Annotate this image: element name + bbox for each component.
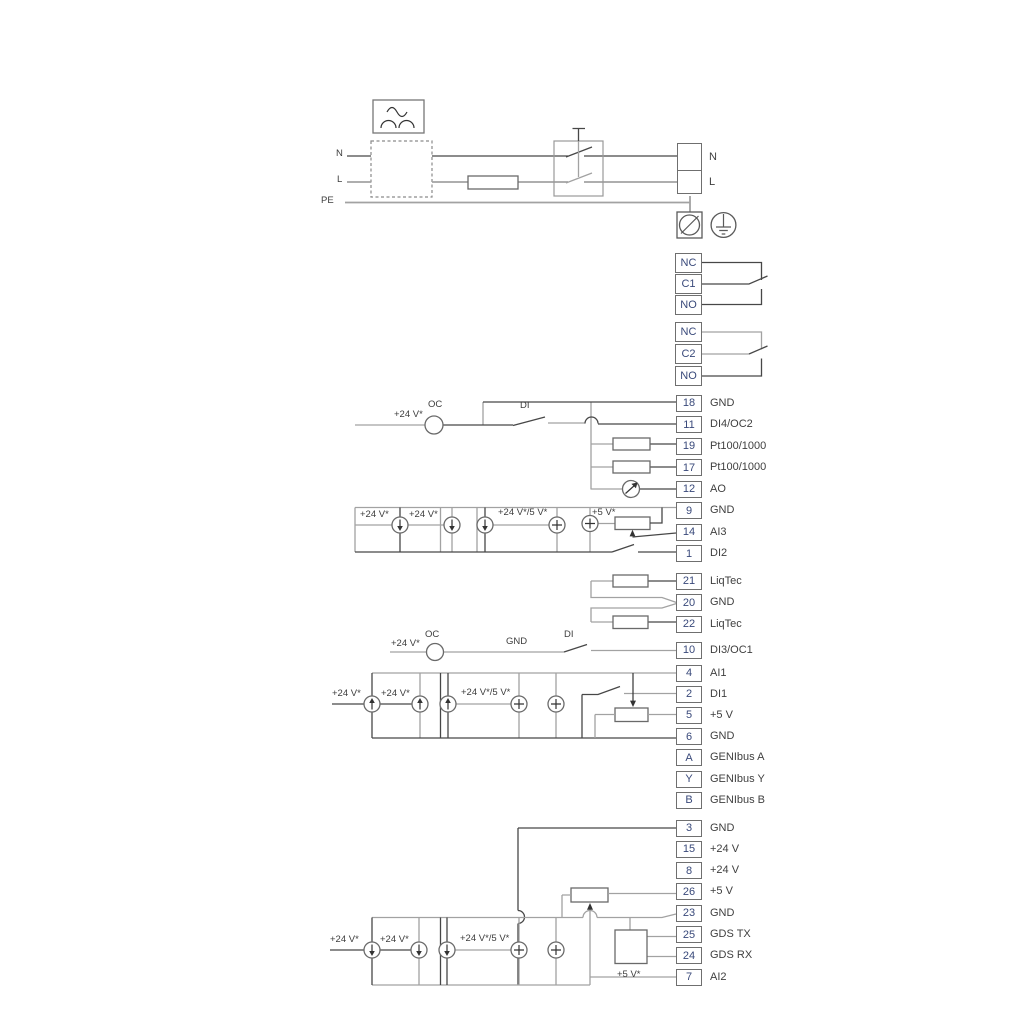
terminal-label-LiqTec: LiqTec <box>710 618 742 631</box>
terminal-cell-15: 15 <box>676 841 702 858</box>
label-pe: PE <box>321 196 334 206</box>
terminal-cell-NC: NC <box>675 322 702 342</box>
terminal-cell-17: 17 <box>676 459 702 476</box>
resistor-symbol <box>613 438 650 450</box>
terminal-label-AI3: AI3 <box>710 526 727 539</box>
terminal-cell-7: 7 <box>676 969 702 986</box>
terminal-cell-9: 9 <box>676 502 702 519</box>
terminal-cell-L <box>677 170 702 194</box>
terminal-label-AI1: AI1 <box>710 667 727 680</box>
resistor-symbol <box>613 461 650 473</box>
ai1-potentiometer <box>595 673 676 738</box>
potentiometer-symbol <box>571 888 608 902</box>
terminal-label-DI1: DI1 <box>710 688 727 701</box>
power-input-circuit <box>345 129 690 213</box>
terminal-label-GENIbus-A: GENIbus A <box>710 751 764 764</box>
terminal-label-+24-V: +24 V <box>710 864 739 877</box>
di2-switch <box>612 545 676 553</box>
terminal-cell-C2: C2 <box>675 344 702 364</box>
terminal-label-DI3-OC1: DI3/OC1 <box>710 644 753 657</box>
ground-tap <box>573 129 586 142</box>
relay2-contact-wiring <box>702 332 768 376</box>
terminal-cell-C1: C1 <box>675 274 702 294</box>
ai3-supply-label-2: +24 V* <box>409 510 438 520</box>
ai1-supply-label-3: +24 V*/5 V* <box>461 688 510 698</box>
terminal-label-Pt100-1000: Pt100/1000 <box>710 440 766 453</box>
di4-supply-label: +24 V* <box>394 410 423 420</box>
terminal-label-+5-V: +5 V <box>710 709 733 722</box>
di4-oc-label: OC <box>428 400 442 410</box>
fuse-symbol <box>468 176 518 189</box>
ai3-supply-label-3: +24 V*/5 V* <box>498 508 547 518</box>
ai2-supply-label-1: +24 V* <box>330 935 359 945</box>
liqtec-sensor-1 <box>591 575 677 603</box>
terminal-cell-B: B <box>676 792 702 809</box>
terminal-cell-18: 18 <box>676 395 702 412</box>
label-l-left: L <box>337 175 342 185</box>
pt100-sensor-2 <box>591 461 676 473</box>
ai1-supply-label-2: +24 V* <box>381 689 410 699</box>
ai3-supply-label-1: +24 V* <box>360 510 389 520</box>
ai2-supply-label-3: +24 V*/5 V* <box>460 934 509 944</box>
terminal-cell-1: 1 <box>676 545 702 562</box>
terminal-cell-Y: Y <box>676 771 702 788</box>
ai1-supply-options <box>332 673 676 738</box>
resistor-symbol <box>613 616 648 629</box>
terminal-cell-8: 8 <box>676 862 702 879</box>
terminal-cell-14: 14 <box>676 524 702 541</box>
terminal-cell-24: 24 <box>676 947 702 964</box>
di3-di-label: DI <box>564 630 574 640</box>
terminal-label-AO: AO <box>710 483 726 496</box>
open-collector-symbol <box>425 416 443 434</box>
terminal-cell-NO: NO <box>675 295 702 315</box>
terminal-label-Pt100-1000: Pt100/1000 <box>710 461 766 474</box>
wiring-diagram: NLNCC1NONCC2NO18GND11DI4/OC219Pt100/1000… <box>0 0 1024 1024</box>
terminal-label-GND: GND <box>710 504 734 517</box>
di3-oc-label: OC <box>425 630 439 640</box>
terminal-cell-12: 12 <box>676 481 702 498</box>
pe-screw-terminal <box>677 212 702 238</box>
gds-sensor-box <box>615 918 676 964</box>
terminal-label-GND: GND <box>710 907 734 920</box>
terminal-cell-20: 20 <box>676 594 702 611</box>
terminal-cell-N <box>677 143 702 172</box>
terminal-cell-21: 21 <box>676 573 702 590</box>
terminal-cell-NO: NO <box>675 366 702 386</box>
terminal-cell-22: 22 <box>676 616 702 633</box>
terminal-cell-5: 5 <box>676 707 702 724</box>
terminal-label-GND: GND <box>710 397 734 410</box>
terminal-label-DI2: DI2 <box>710 547 727 560</box>
terminal-label-AI2: AI2 <box>710 971 727 984</box>
terminal-label-GDS-TX: GDS TX <box>710 928 751 941</box>
di3-gnd-label: GND <box>506 637 527 647</box>
ai3-supply-label-4: +5 V* <box>592 508 616 518</box>
terminal-cell-26: 26 <box>676 883 702 900</box>
liqtec-sensor-2 <box>591 604 677 629</box>
terminal-cell-23: 23 <box>676 905 702 922</box>
terminal-cell-19: 19 <box>676 438 702 455</box>
wiper-arrow <box>587 903 593 910</box>
ai2-supply-label-2: +24 V* <box>380 935 409 945</box>
ai2-supply-label-4: +5 V* <box>617 970 641 980</box>
terminal-label-GENIbus-Y: GENIbus Y <box>710 773 765 786</box>
terminal-label-LiqTec: LiqTec <box>710 575 742 588</box>
terminal-cell-3: 3 <box>676 820 702 837</box>
terminal-label-+24-V: +24 V <box>710 843 739 856</box>
wiper-arrow <box>630 701 636 707</box>
terminal-label-GND: GND <box>710 596 734 609</box>
terminal-cell-2: 2 <box>676 686 702 703</box>
earth-symbol <box>711 213 736 238</box>
mains-waveform-symbol <box>373 100 424 133</box>
potentiometer-symbol <box>615 517 650 530</box>
gnd3-wire <box>518 828 676 985</box>
resistor-symbol <box>613 575 648 587</box>
potentiometer-symbol <box>615 708 648 722</box>
terminal-cell-11: 11 <box>676 416 702 433</box>
terminal-cell-25: 25 <box>676 926 702 943</box>
open-collector-symbol <box>427 644 444 661</box>
relay1-contact-wiring <box>702 263 768 305</box>
terminal-label-GND: GND <box>710 822 734 835</box>
di4-di-label: DI <box>520 401 530 411</box>
supply-source-symbols <box>364 516 598 959</box>
terminal-cell-4: 4 <box>676 665 702 682</box>
terminal-cell-NC: NC <box>675 253 702 273</box>
terminal-label-L: L <box>709 176 715 189</box>
ai1-supply-label-1: +24 V* <box>332 689 361 699</box>
ai3-potentiometer <box>615 508 676 538</box>
terminal-label-GENIbus-B: GENIbus B <box>710 794 765 807</box>
di3-oc1-circuit <box>390 644 676 661</box>
wiper-arrow <box>630 530 636 537</box>
di3-supply-label: +24 V* <box>391 639 420 649</box>
terminal-label-+5-V: +5 V <box>710 885 733 898</box>
terminal-cell-6: 6 <box>676 728 702 745</box>
terminal-cell-10: 10 <box>676 642 702 659</box>
pt100-sensor-1 <box>591 438 676 450</box>
ao-meter <box>591 481 676 498</box>
label-n-left: N <box>336 149 343 159</box>
terminal-label-N: N <box>709 151 717 164</box>
terminal-label-GND: GND <box>710 730 734 743</box>
sensor-box-symbol <box>615 930 647 964</box>
terminal-label-DI4-OC2: DI4/OC2 <box>710 418 753 431</box>
optional-module-box <box>371 141 432 197</box>
terminal-cell-A: A <box>676 749 702 766</box>
terminal-label-GDS-RX: GDS RX <box>710 949 752 962</box>
